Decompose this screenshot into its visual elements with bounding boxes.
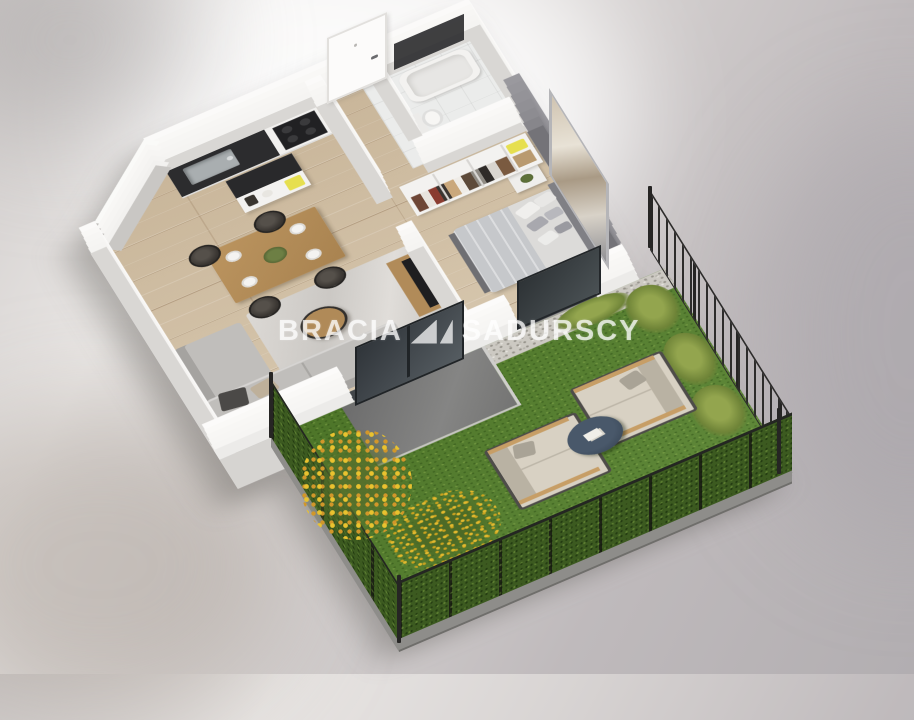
fence-post — [777, 408, 781, 474]
yellow-towel — [284, 174, 306, 191]
fence-post — [648, 186, 652, 248]
watermark-brand-left: BRACIA — [278, 315, 403, 348]
door-peephole — [354, 43, 357, 47]
fence-post — [269, 372, 273, 438]
watermark-brand-right: SADURSCY — [462, 315, 641, 348]
island-decor-dark — [244, 194, 259, 207]
floor-plan-render-page: { "watermark": { "left": "BRACIA", "righ… — [0, 0, 914, 674]
fence-post — [397, 575, 401, 643]
burner — [298, 117, 312, 127]
island-decor-dish — [260, 188, 274, 198]
watermark: BRACIA SADURSCY — [278, 315, 658, 348]
burner — [286, 134, 300, 144]
burner — [280, 125, 294, 135]
brand-triangle-small-icon — [440, 320, 453, 344]
burner — [304, 126, 318, 136]
loveseat-seat-split — [589, 389, 652, 417]
sofa-cushion-split — [301, 362, 321, 392]
nightstand-plant — [519, 172, 536, 184]
brand-triangle-icon — [411, 320, 437, 344]
faucet — [226, 155, 234, 161]
book-on-table — [583, 428, 603, 442]
sunflower-cluster — [300, 428, 412, 540]
door-handle — [371, 54, 378, 60]
